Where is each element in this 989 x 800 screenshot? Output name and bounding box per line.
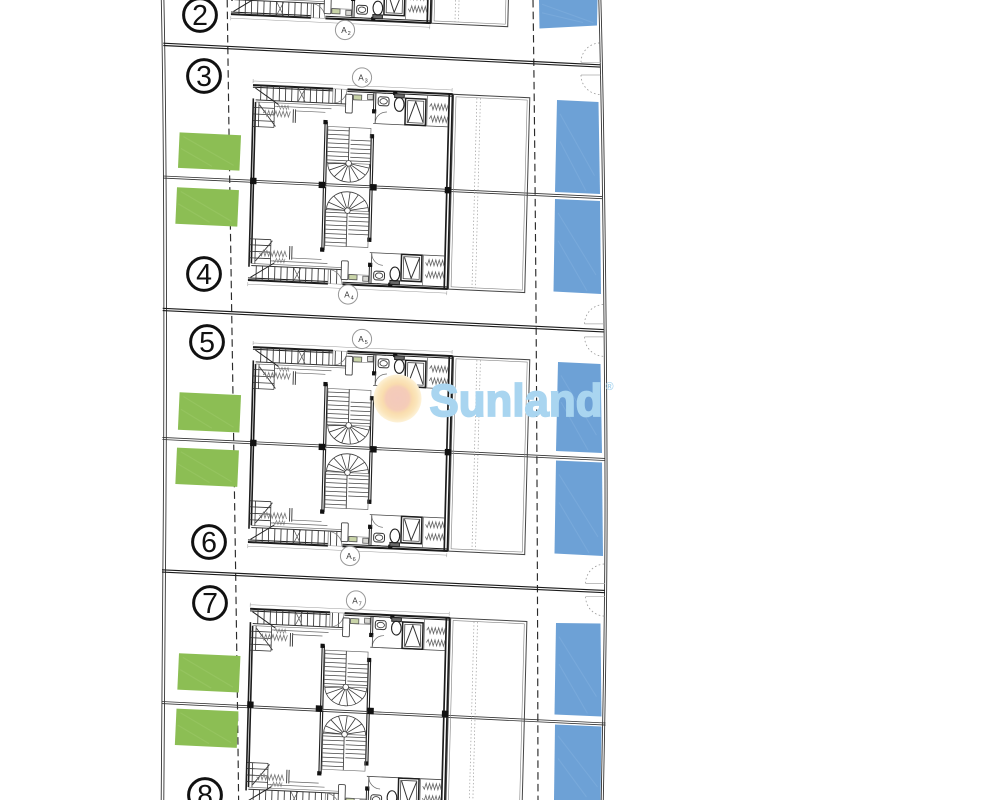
svg-text:®: ® xyxy=(606,381,614,393)
svg-text:A: A xyxy=(358,335,364,344)
svg-text:Sunland: Sunland xyxy=(430,375,603,426)
svg-text:5: 5 xyxy=(199,327,215,359)
svg-text:8: 8 xyxy=(197,780,213,800)
svg-text:A: A xyxy=(344,291,350,300)
svg-text:4: 4 xyxy=(196,259,212,291)
svg-text:2: 2 xyxy=(348,31,351,37)
svg-text:A: A xyxy=(341,26,347,35)
svg-text:6: 6 xyxy=(353,557,356,563)
svg-text:A: A xyxy=(358,74,364,83)
svg-text:7: 7 xyxy=(359,602,362,608)
svg-text:6: 6 xyxy=(201,527,217,559)
svg-text:A: A xyxy=(352,597,358,606)
svg-text:4: 4 xyxy=(351,296,354,302)
svg-text:5: 5 xyxy=(365,340,368,346)
svg-text:2: 2 xyxy=(192,0,208,32)
svg-text:A: A xyxy=(346,552,352,561)
svg-text:3: 3 xyxy=(196,61,212,93)
svg-text:7: 7 xyxy=(202,588,218,620)
svg-text:3: 3 xyxy=(365,79,368,85)
